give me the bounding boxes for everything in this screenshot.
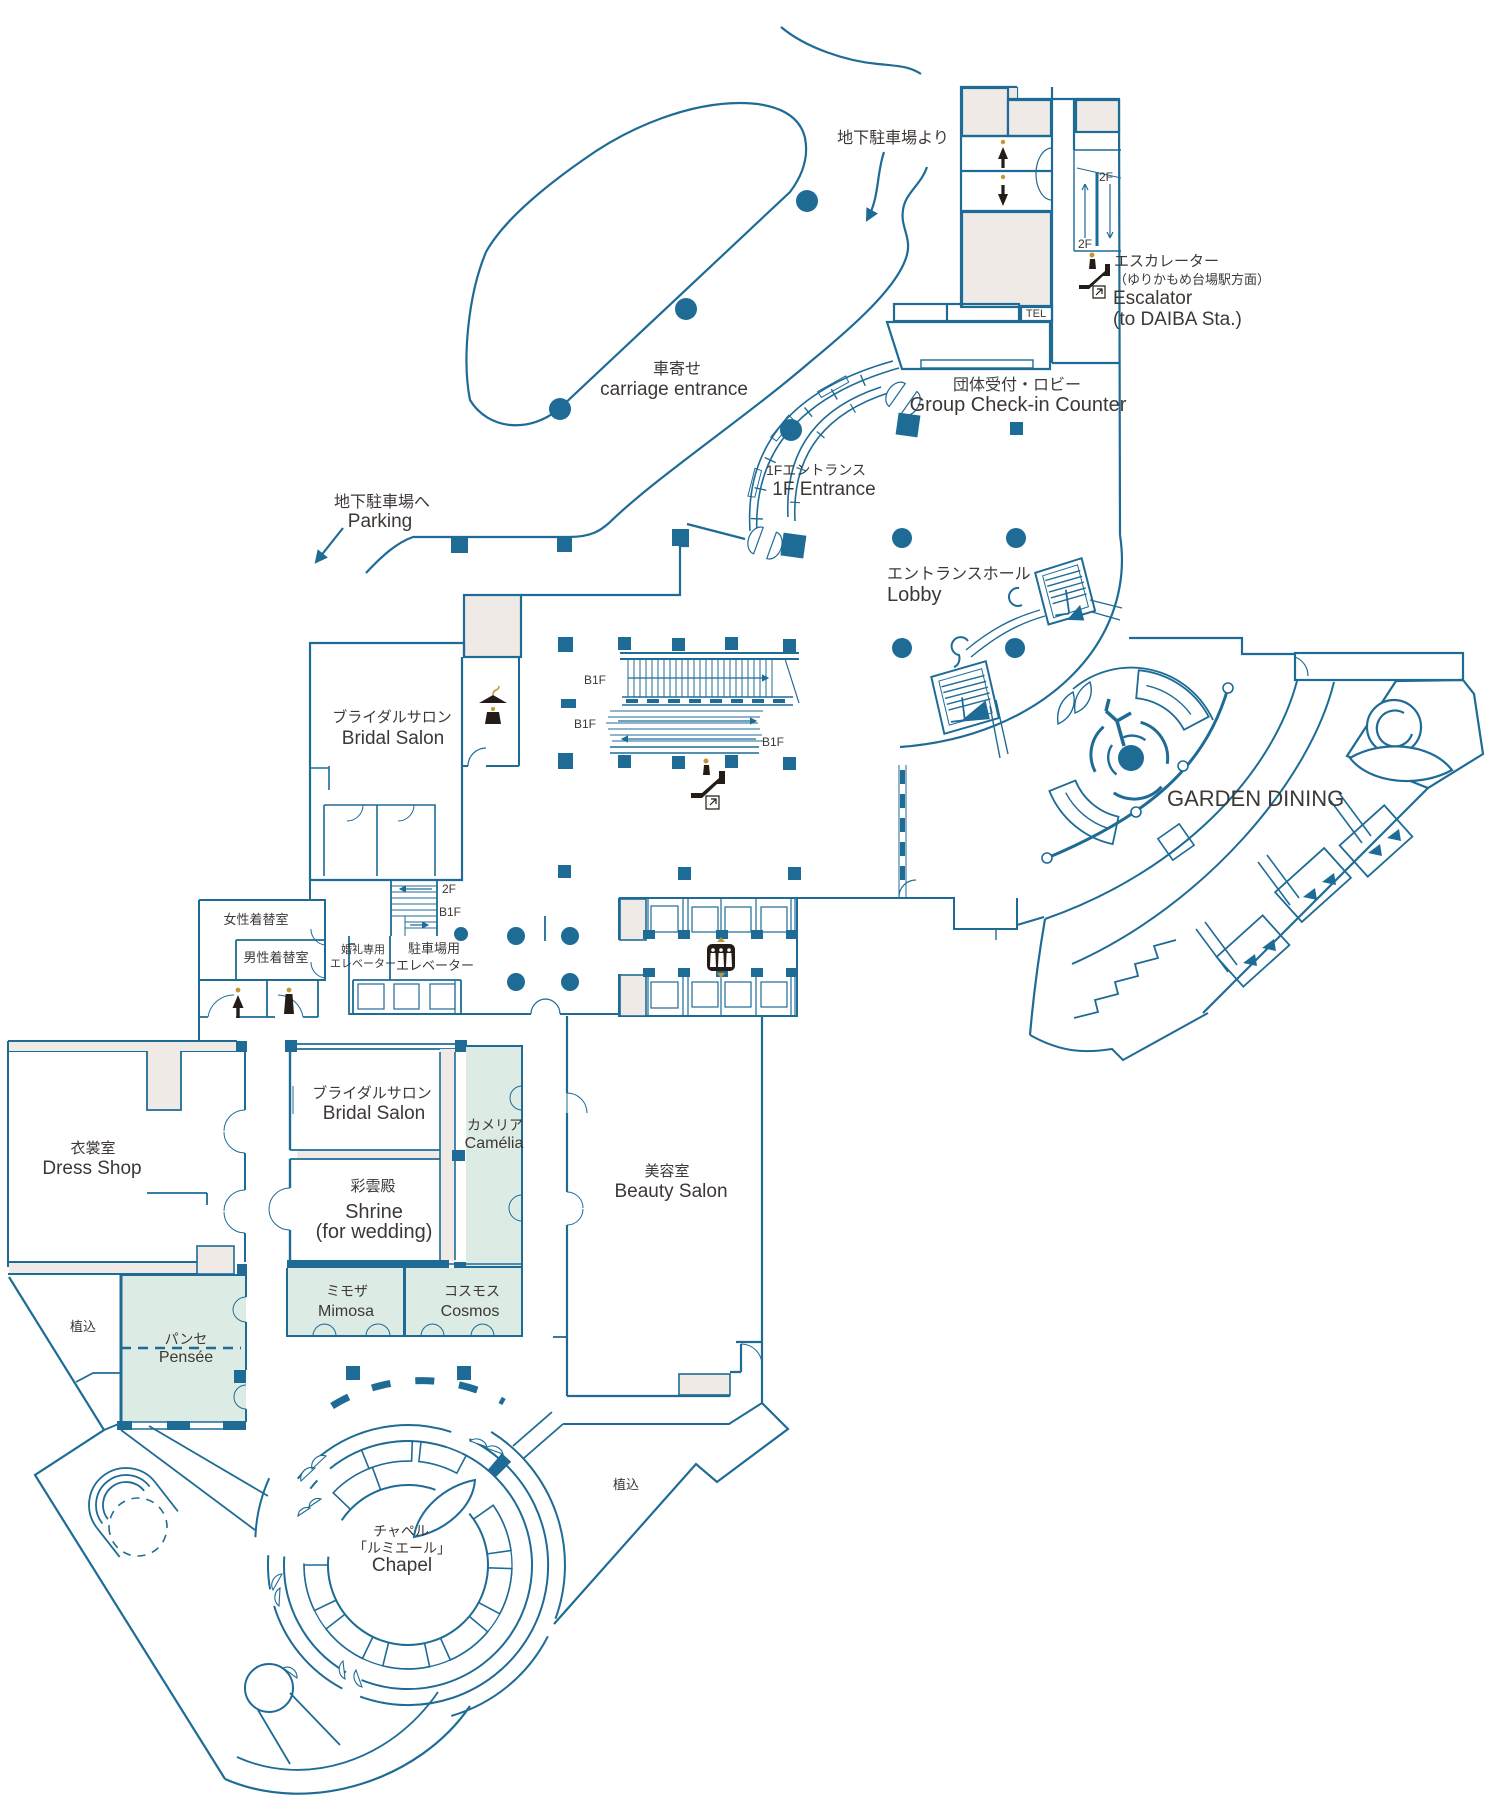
svg-text:Pensée: Pensée [159,1349,213,1366]
svg-text:植込: 植込 [613,1477,639,1492]
svg-text:駐車場用: 駐車場用 [408,941,460,956]
svg-text:2F: 2F [1078,237,1092,251]
svg-text:2F: 2F [442,882,456,896]
svg-text:ブライダルサロン: ブライダルサロン [332,708,451,726]
svg-text:衣裳室: 衣裳室 [70,1140,115,1157]
svg-text:エスカレーター: エスカレーター [1114,253,1219,270]
svg-text:ミモザ: ミモザ [326,1283,368,1299]
svg-text:団体受付・ロビー: 団体受付・ロビー [953,376,1081,394]
svg-text:Parking: Parking [348,511,412,532]
svg-text:Dress Shop: Dress Shop [42,1158,141,1179]
svg-text:1F Entrance: 1F Entrance [772,479,876,500]
svg-text:(to DAIBA Sta.): (to DAIBA Sta.) [1113,309,1242,330]
svg-text:B1F: B1F [574,717,596,731]
svg-text:コスモス: コスモス [444,1283,500,1299]
svg-text:Chapel: Chapel [372,1555,432,1576]
svg-text:車寄せ: 車寄せ [653,360,701,378]
svg-text:チャペル: チャペル [373,1523,429,1539]
svg-text:1Fエントランス: 1Fエントランス [766,462,866,478]
svg-text:Camélia: Camélia [465,1135,524,1152]
svg-text:TEL: TEL [1026,308,1046,320]
svg-text:（ゆりかもめ台場駅方面）: （ゆりかもめ台場駅方面） [1114,272,1270,287]
svg-text:エレベーター: エレベーター [396,958,474,973]
svg-text:男性着替室: 男性着替室 [243,950,308,965]
svg-text:カメリア: カメリア [467,1117,523,1133]
svg-text:地下駐車場へ: 地下駐車場へ [334,493,430,511]
svg-text:Escalator: Escalator [1113,288,1193,309]
svg-text:ブライダルサロン: ブライダルサロン [312,1084,431,1102]
svg-text:婚礼専用: 婚礼専用 [341,942,385,956]
svg-text:carriage entrance: carriage entrance [600,379,748,400]
svg-text:Mimosa: Mimosa [318,1303,374,1320]
svg-text:Bridal Salon: Bridal Salon [342,728,444,749]
svg-text:エントランスホール: エントランスホール [887,566,1031,583]
svg-text:(for wedding): (for wedding) [316,1221,433,1243]
svg-text:B1F: B1F [439,905,461,919]
svg-text:2F: 2F [1099,170,1113,184]
svg-text:B1F: B1F [584,673,606,687]
svg-text:Lobby: Lobby [887,584,942,606]
svg-text:Group Check-in Counter: Group Check-in Counter [910,394,1127,416]
svg-text:「ルミエール」: 「ルミエール」 [353,1540,451,1556]
svg-text:Shrine: Shrine [345,1201,403,1223]
svg-text:美容室: 美容室 [644,1163,689,1180]
svg-text:パンセ: パンセ [165,1331,208,1347]
svg-text:彩雲殿: 彩雲殿 [350,1178,395,1195]
svg-text:GARDEN DINING: GARDEN DINING [1167,786,1344,811]
svg-text:植込: 植込 [70,1319,96,1334]
svg-text:女性着替室: 女性着替室 [223,912,288,927]
svg-text:エレベーター: エレベーター [330,957,396,970]
svg-text:Cosmos: Cosmos [441,1303,500,1320]
svg-text:地下駐車場より: 地下駐車場より [837,129,949,147]
svg-text:Bridal Salon: Bridal Salon [323,1103,425,1124]
svg-text:B1F: B1F [762,735,784,749]
svg-text:Beauty Salon: Beauty Salon [614,1181,727,1202]
